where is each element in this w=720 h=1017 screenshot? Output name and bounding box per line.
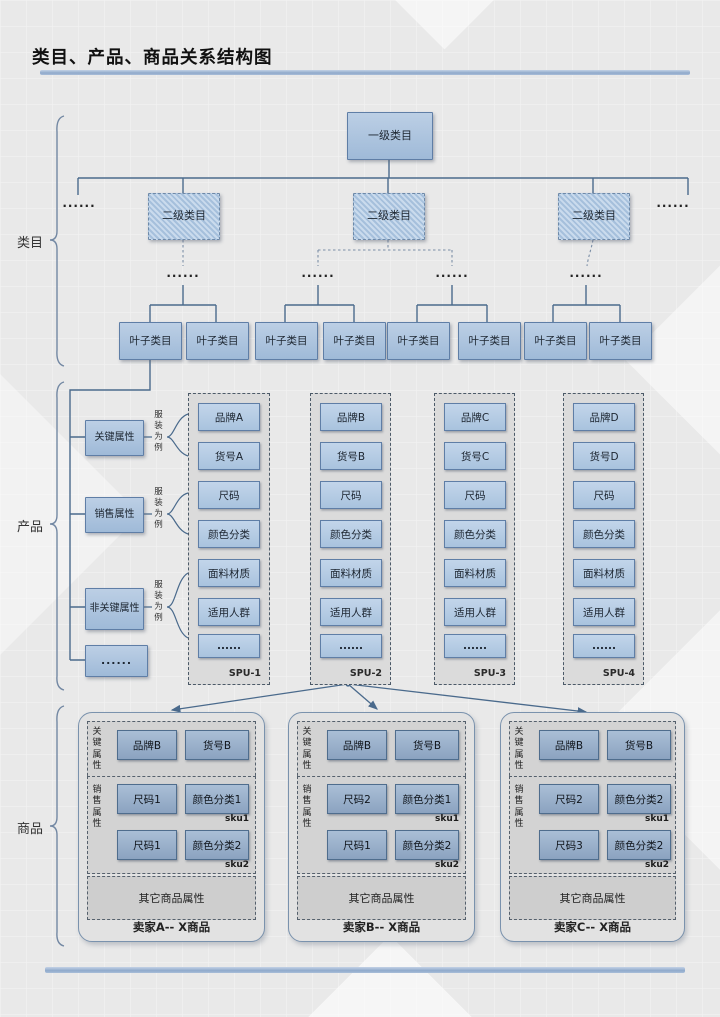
node-nonkey-attributes: 非关键属性 <box>85 588 144 630</box>
section-label-product: 产品 <box>12 516 48 535</box>
spu-attribute: 品牌A <box>198 403 260 431</box>
seller-card-c: 关键属性 品牌B 货号B 销售属性 尺码2 颜色分类2 sku1 尺码3 颜色分… <box>500 712 685 942</box>
key-attributes-label: 关键属性 <box>300 727 314 772</box>
size-box: 尺码1 <box>327 830 387 860</box>
spu-attribute: 面料材质 <box>320 559 382 587</box>
title-underline-bar <box>40 70 690 75</box>
brand-box: 品牌B <box>539 730 599 760</box>
spu-attribute: 尺码 <box>198 481 260 509</box>
spu-container-3: 品牌C 货号C 尺码 颜色分类 面料材质 适用人群 ...... SPU-3 <box>434 393 515 685</box>
other-attributes-box: 其它商品属性 <box>297 876 466 920</box>
spu-attribute-ellipsis: ...... <box>320 634 382 658</box>
page-title: 类目、产品、商品关系结构图 <box>32 44 273 69</box>
sales-attributes-section: 销售属性 尺码2 颜色分类2 sku1 尺码3 颜色分类2 sku2 <box>509 776 676 874</box>
spu-attribute: 面料材质 <box>573 559 635 587</box>
footer-bar <box>45 967 685 973</box>
size-box: 尺码2 <box>327 784 387 814</box>
section-label-catalog: 类目 <box>12 232 48 251</box>
note-clothing-example: 服装为例 <box>152 487 165 531</box>
sku-tag: sku1 <box>645 814 669 824</box>
spu-attribute: 颜色分类 <box>198 520 260 548</box>
spu-attribute-ellipsis: ...... <box>573 634 635 658</box>
node-leaf-category: 叶子类目 <box>255 322 318 360</box>
item-number-box: 货号B <box>395 730 459 760</box>
spu-container-1: 品牌A 货号A 尺码 颜色分类 面料材质 适用人群 ...... SPU-1 <box>188 393 270 685</box>
sales-attributes-section: 销售属性 尺码1 颜色分类1 sku1 尺码1 颜色分类2 sku2 <box>87 776 256 874</box>
spu-attribute: 颜色分类 <box>573 520 635 548</box>
node-sales-attributes: 销售属性 <box>85 497 144 533</box>
spu-attribute: 品牌C <box>444 403 506 431</box>
color-box: 颜色分类2 <box>607 784 671 814</box>
spu-name: SPU-4 <box>603 668 635 679</box>
brand-box: 品牌B <box>117 730 177 760</box>
size-box: 尺码1 <box>117 784 177 814</box>
node-leaf-category: 叶子类目 <box>589 322 652 360</box>
seller-card-a: 关键属性 品牌B 货号B 销售属性 尺码1 颜色分类1 sku1 尺码1 颜色分… <box>78 712 265 942</box>
sku-tag: sku2 <box>225 860 249 870</box>
spu-attribute: 适用人群 <box>198 598 260 626</box>
node-leaf-category: 叶子类目 <box>323 322 386 360</box>
spu-attribute: 品牌B <box>320 403 382 431</box>
spu-attribute: 货号C <box>444 442 506 470</box>
key-attributes-label: 关键属性 <box>90 727 104 772</box>
spu-attribute: 尺码 <box>444 481 506 509</box>
section-label-goods: 商品 <box>12 818 48 837</box>
spu-attribute-ellipsis: ...... <box>444 634 506 658</box>
color-box: 颜色分类2 <box>395 830 459 860</box>
other-attributes-box: 其它商品属性 <box>87 876 256 920</box>
spu-attribute: 货号D <box>573 442 635 470</box>
node-leaf-category: 叶子类目 <box>458 322 521 360</box>
sku-tag: sku2 <box>435 860 459 870</box>
spu-attribute: 品牌D <box>573 403 635 431</box>
node-more-attributes: ...... <box>85 645 148 677</box>
sales-attributes-section: 销售属性 尺码2 颜色分类1 sku1 尺码1 颜色分类2 sku2 <box>297 776 466 874</box>
spu-attribute: 货号A <box>198 442 260 470</box>
note-clothing-example: 服装为例 <box>152 580 165 624</box>
item-number-box: 货号B <box>607 730 671 760</box>
spu-attribute: 适用人群 <box>320 598 382 626</box>
node-leaf-category: 叶子类目 <box>119 322 182 360</box>
color-box: 颜色分类2 <box>607 830 671 860</box>
size-box: 尺码1 <box>117 830 177 860</box>
other-attributes-box: 其它商品属性 <box>509 876 676 920</box>
spu-attribute: 适用人群 <box>444 598 506 626</box>
spu-name: SPU-2 <box>350 668 382 679</box>
key-attributes-section: 关键属性 品牌B 货号B <box>87 721 256 781</box>
node-leaf-category: 叶子类目 <box>524 322 587 360</box>
node-level2-category: 二级类目 <box>148 193 220 240</box>
spu-attribute: 尺码 <box>573 481 635 509</box>
ellipsis-mid: ...... <box>430 266 474 280</box>
spu-attribute: 货号B <box>320 442 382 470</box>
seller-card-b: 关键属性 品牌B 货号B 销售属性 尺码2 颜色分类1 sku1 尺码1 颜色分… <box>288 712 475 942</box>
node-key-attributes: 关键属性 <box>85 420 144 456</box>
spu-attribute: 颜色分类 <box>444 520 506 548</box>
ellipsis-mid: ...... <box>296 266 340 280</box>
spu-name: SPU-3 <box>474 668 506 679</box>
diagram-page: 类目、产品、商品关系结构图 类目 产品 商品 一级类目 ...... .....… <box>0 0 720 1017</box>
node-root-category: 一级类目 <box>347 112 433 160</box>
ellipsis-right: ...... <box>652 196 694 210</box>
seller-name: 卖家C-- X商品 <box>501 919 684 935</box>
spu-container-4: 品牌D 货号D 尺码 颜色分类 面料材质 适用人群 ...... SPU-4 <box>563 393 644 685</box>
spu-container-2: 品牌B 货号B 尺码 颜色分类 面料材质 适用人群 ...... SPU-2 <box>310 393 391 685</box>
spu-attribute: 面料材质 <box>198 559 260 587</box>
item-number-box: 货号B <box>185 730 249 760</box>
node-leaf-category: 叶子类目 <box>186 322 249 360</box>
color-box: 颜色分类1 <box>185 784 249 814</box>
spu-attribute: 适用人群 <box>573 598 635 626</box>
spu-attribute: 面料材质 <box>444 559 506 587</box>
seller-name: 卖家B-- X商品 <box>289 919 474 935</box>
seller-name: 卖家A-- X商品 <box>79 919 264 935</box>
ellipsis-mid: ...... <box>161 266 205 280</box>
key-attributes-section: 关键属性 品牌B 货号B <box>509 721 676 781</box>
node-level2-category: 二级类目 <box>558 193 630 240</box>
node-level2-category: 二级类目 <box>353 193 425 240</box>
ellipsis-left: ...... <box>58 196 100 210</box>
key-attributes-section: 关键属性 品牌B 货号B <box>297 721 466 781</box>
sales-attributes-label: 销售属性 <box>300 785 314 830</box>
spu-attribute-ellipsis: ...... <box>198 634 260 658</box>
sales-attributes-label: 销售属性 <box>512 785 526 830</box>
sales-attributes-label: 销售属性 <box>90 785 104 830</box>
node-leaf-category: 叶子类目 <box>387 322 450 360</box>
ellipsis-mid: ...... <box>564 266 608 280</box>
size-box: 尺码2 <box>539 784 599 814</box>
spu-attribute: 颜色分类 <box>320 520 382 548</box>
sku-tag: sku1 <box>435 814 459 824</box>
sku-tag: sku1 <box>225 814 249 824</box>
spu-attribute: 尺码 <box>320 481 382 509</box>
size-box: 尺码3 <box>539 830 599 860</box>
key-attributes-label: 关键属性 <box>512 727 526 772</box>
sku-tag: sku2 <box>645 860 669 870</box>
spu-name: SPU-1 <box>229 668 261 679</box>
color-box: 颜色分类1 <box>395 784 459 814</box>
note-clothing-example: 服装为例 <box>152 410 165 454</box>
color-box: 颜色分类2 <box>185 830 249 860</box>
brand-box: 品牌B <box>327 730 387 760</box>
